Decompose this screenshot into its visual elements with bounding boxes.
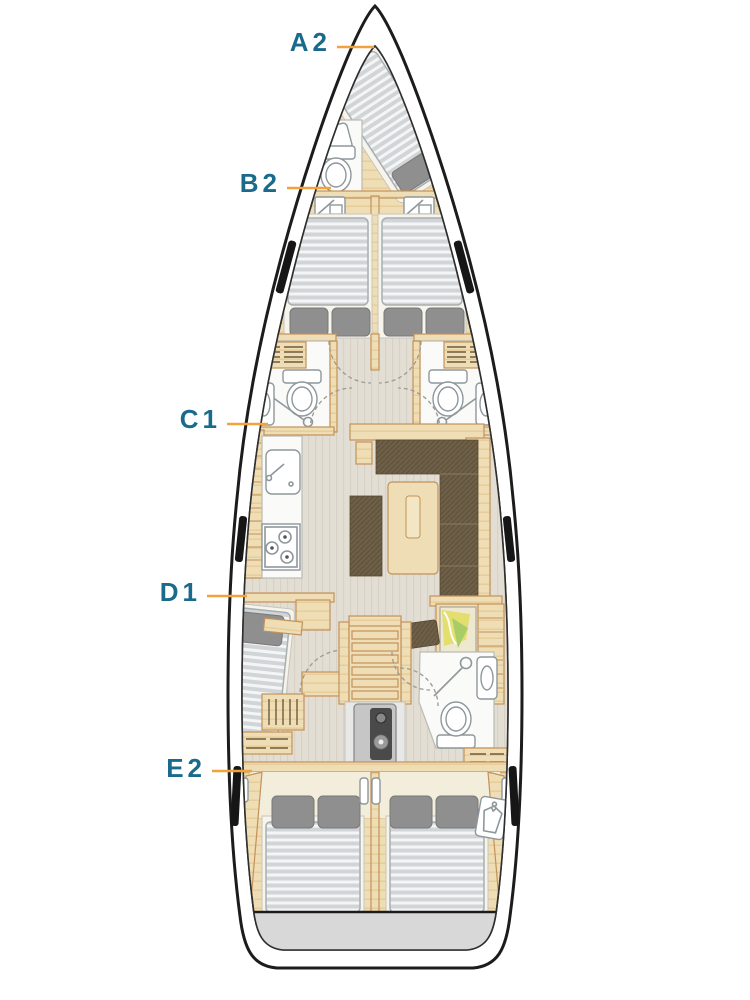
label-d1-text: D1 [160, 577, 201, 607]
stairs-rail-starboard [401, 622, 411, 704]
sofa-backrest-top [350, 424, 484, 440]
pillow-icon [390, 796, 432, 828]
engine-compartment [345, 702, 405, 770]
label-c1-text: C1 [180, 404, 221, 434]
chart-table [436, 604, 480, 656]
starboard-head-wall [413, 341, 420, 432]
starboard-aft-berth [386, 796, 488, 912]
port-aft-berth [262, 796, 364, 912]
pillow-icon [318, 796, 360, 828]
sink-icon [477, 657, 497, 699]
pillow-icon [272, 796, 314, 828]
stove-icon [262, 524, 300, 570]
corridor-center-post [371, 334, 379, 370]
sofa-side-block [356, 442, 372, 464]
berth-mattress-icon [390, 822, 484, 912]
label-b2-text: B2 [240, 168, 281, 198]
saloon-table [388, 482, 438, 574]
companionway-stairs-icon [349, 626, 401, 702]
chart-table-map-icon [440, 607, 476, 653]
saloon-bench [350, 496, 382, 576]
pillow-icon [426, 308, 464, 336]
engine-icon [354, 704, 396, 766]
aft-cabins [240, 762, 510, 912]
port-head-wall [330, 341, 337, 432]
drawer-unit [240, 732, 292, 754]
berth-mattress-icon [266, 822, 360, 912]
pillow-icon [436, 796, 478, 828]
drawer-unit [262, 694, 304, 730]
step-block [302, 672, 340, 696]
label-e2-text: E2 [166, 753, 206, 783]
deck-plan-svg: A2 B2 C1 D1 E2 [0, 0, 750, 1000]
stairs-rail-port [339, 622, 349, 704]
pillow-icon [290, 308, 328, 336]
yacht-layout-plan: A2 B2 C1 D1 E2 [0, 0, 750, 1000]
aft-bulkhead [242, 762, 508, 772]
companionway [339, 616, 411, 770]
label-a2-text: A2 [290, 27, 331, 57]
pillow-icon [332, 308, 370, 336]
pillow-icon [384, 308, 422, 336]
sink-icon [266, 450, 300, 494]
